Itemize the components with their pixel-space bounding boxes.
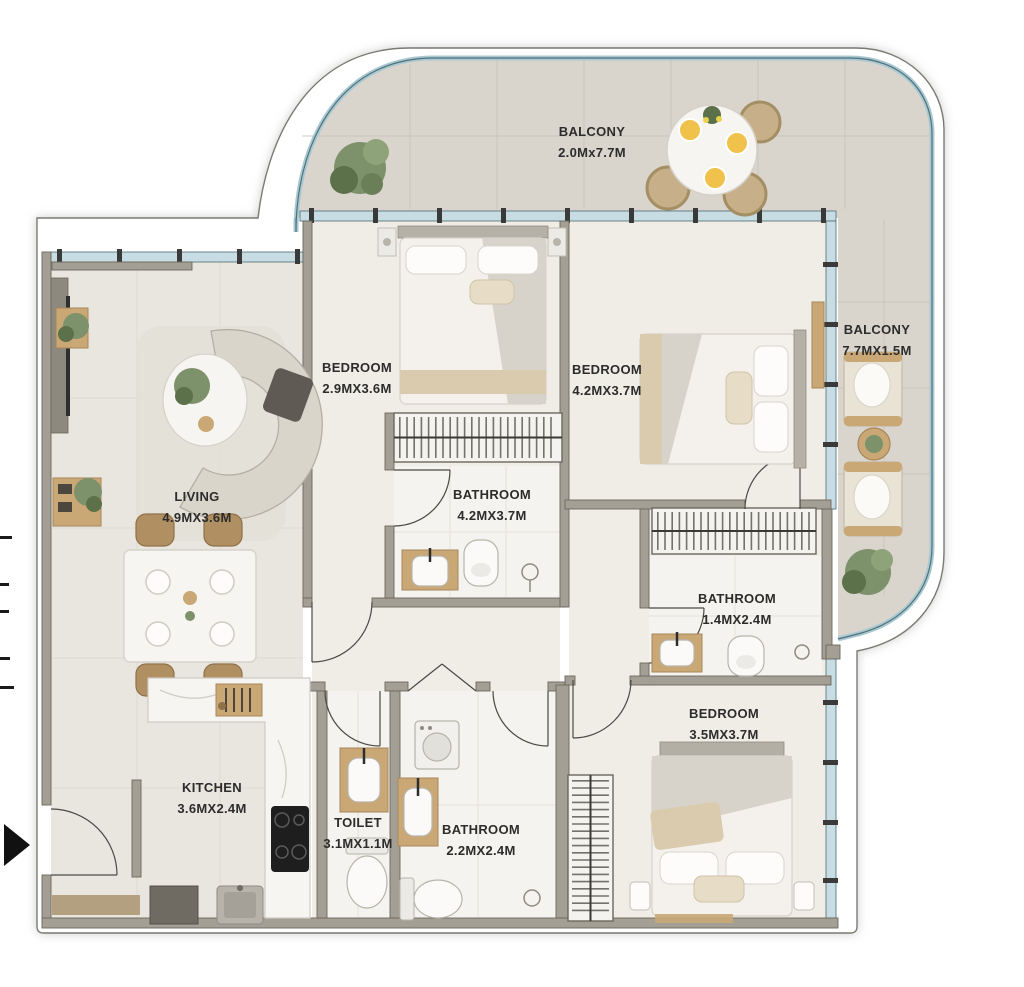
plate bbox=[679, 119, 701, 141]
pillow bbox=[478, 246, 538, 274]
place-setting bbox=[146, 570, 170, 594]
bedroom-3-bed bbox=[630, 742, 814, 923]
fridge bbox=[150, 886, 198, 924]
bedroom-1-bed bbox=[378, 226, 566, 404]
pillow bbox=[754, 346, 788, 396]
tv-console bbox=[51, 278, 68, 433]
wardrobe-bathroom-2 bbox=[652, 508, 816, 554]
place-setting bbox=[210, 570, 234, 594]
dresser bbox=[812, 302, 824, 388]
svg-text:3.1MX1.1M: 3.1MX1.1M bbox=[323, 836, 392, 851]
svg-text:2.2MX2.4M: 2.2MX2.4M bbox=[446, 843, 515, 858]
headboard bbox=[794, 330, 806, 468]
headboard bbox=[398, 226, 548, 238]
svg-text:7.7MX1.5M: 7.7MX1.5M bbox=[842, 343, 911, 358]
blanket bbox=[400, 370, 546, 394]
svg-text:LIVING: LIVING bbox=[174, 489, 219, 504]
svg-text:3.6MX2.4M: 3.6MX2.4M bbox=[177, 801, 246, 816]
wardrobe-bedroom-3 bbox=[568, 775, 613, 921]
floor-plan-page: BALCONY2.0Mx7.7M BALCONY7.7MX1.5M BEDROO… bbox=[0, 0, 1024, 987]
doormat bbox=[52, 895, 140, 915]
console-plant bbox=[56, 308, 89, 348]
table-dish bbox=[198, 416, 214, 432]
svg-text:4.9MX3.6M: 4.9MX3.6M bbox=[162, 510, 231, 525]
svg-text:BATHROOM: BATHROOM bbox=[442, 822, 520, 837]
floor-plan: BALCONY2.0Mx7.7M BALCONY7.7MX1.5M BEDROO… bbox=[0, 0, 1024, 987]
svg-text:BATHROOM: BATHROOM bbox=[453, 487, 531, 502]
stove bbox=[271, 806, 309, 872]
svg-text:KITCHEN: KITCHEN bbox=[182, 780, 242, 795]
nightstand bbox=[794, 882, 814, 910]
edge-tick-marks bbox=[0, 536, 14, 689]
coffee-table bbox=[163, 354, 247, 446]
kitchen-sink bbox=[217, 885, 263, 924]
svg-text:TOILET: TOILET bbox=[334, 815, 382, 830]
place-setting bbox=[146, 622, 170, 646]
plate bbox=[726, 132, 748, 154]
svg-text:3.5MX3.7M: 3.5MX3.7M bbox=[689, 727, 758, 742]
utensil-rack bbox=[216, 684, 262, 716]
wardrobe-bedroom-1 bbox=[394, 413, 562, 462]
dining-table bbox=[124, 550, 256, 662]
svg-text:2.9MX3.6M: 2.9MX3.6M bbox=[322, 381, 391, 396]
pillow bbox=[754, 402, 788, 452]
side-console bbox=[53, 478, 102, 526]
pillow bbox=[406, 246, 466, 274]
foot-bench bbox=[660, 742, 784, 756]
svg-text:4.2MX3.7M: 4.2MX3.7M bbox=[457, 508, 526, 523]
svg-text:BEDROOM: BEDROOM bbox=[322, 360, 392, 375]
pillow-accent bbox=[694, 876, 744, 902]
wc bbox=[464, 540, 498, 586]
plate bbox=[704, 167, 726, 189]
svg-text:2.0Mx7.7M: 2.0Mx7.7M bbox=[558, 145, 626, 160]
svg-text:1.4MX2.4M: 1.4MX2.4M bbox=[702, 612, 771, 627]
floor-runner bbox=[655, 914, 733, 923]
svg-text:BALCONY: BALCONY bbox=[844, 322, 910, 337]
washing-machine bbox=[415, 721, 459, 769]
pillow-accent bbox=[470, 280, 514, 304]
svg-text:BALCONY: BALCONY bbox=[559, 124, 625, 139]
pillow-accent bbox=[726, 372, 752, 424]
svg-text:4.2MX3.7M: 4.2MX3.7M bbox=[572, 383, 641, 398]
svg-text:BEDROOM: BEDROOM bbox=[689, 706, 759, 721]
entrance-arrow-icon bbox=[4, 824, 30, 866]
nightstand bbox=[630, 882, 650, 910]
svg-text:BATHROOM: BATHROOM bbox=[698, 591, 776, 606]
wc bbox=[728, 636, 764, 676]
place-setting bbox=[210, 622, 234, 646]
wc bbox=[400, 878, 462, 920]
blanket bbox=[640, 334, 662, 464]
svg-text:BEDROOM: BEDROOM bbox=[572, 362, 642, 377]
basin bbox=[348, 758, 380, 802]
